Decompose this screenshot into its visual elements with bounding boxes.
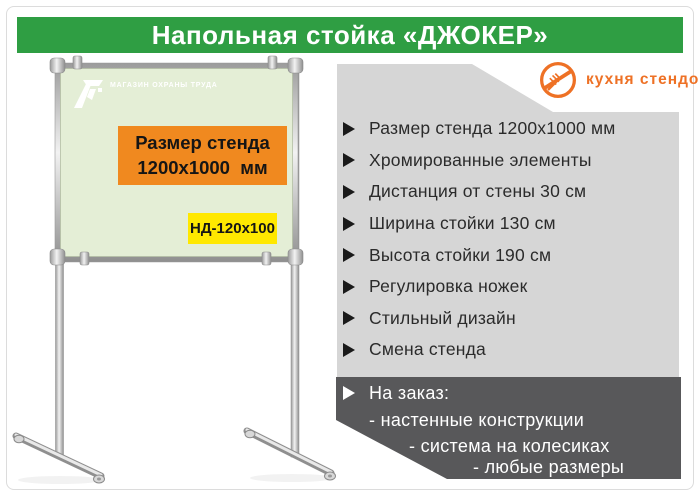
caster-wheel: [245, 430, 255, 438]
spec-item-label: Дистанция от стены 30 см: [369, 181, 586, 202]
model-code: НД-120х100: [190, 220, 275, 237]
bullet-triangle-icon: [343, 217, 355, 231]
spec-item-label: Хромированные элементы: [369, 150, 592, 171]
spec-item: Регулировка ножек: [343, 271, 677, 303]
bullet-triangle-icon: [343, 248, 355, 262]
size-badge-line1: Размер стенда: [135, 131, 270, 156]
board-logo-text: МАГАЗИН ОХРАНЫ ТРУДА: [110, 82, 218, 89]
model-badge: НД-120х100: [188, 213, 277, 244]
size-badge-line2: 1200х1000 мм: [137, 156, 267, 181]
order-title: На заказ:: [369, 383, 449, 404]
right-foot: [245, 430, 336, 482]
brand-label: кухня стендов: [586, 71, 700, 89]
bullet-triangle-icon: [343, 122, 355, 136]
order-title-row: На заказ:: [343, 382, 449, 404]
order-line-label: - любые размеры: [473, 457, 624, 478]
no-kitchen-fork-icon: [538, 60, 578, 100]
brand-logo: кухня стендов: [538, 60, 700, 100]
spec-item-label: Ширина стойки 130 см: [369, 213, 556, 234]
spec-item: Размер стенда 1200х1000 мм: [343, 113, 677, 145]
order-line-label: - система на колесиках: [409, 436, 610, 457]
spec-item: Ширина стойки 130 см: [343, 208, 677, 240]
order-line: - любые размеры: [473, 456, 624, 478]
board-logo-icon: [70, 76, 104, 112]
spec-item: Дистанция от стены 30 см: [343, 176, 677, 208]
caster-wheel: [14, 435, 24, 443]
spec-item-label: Размер стенда 1200х1000 мм: [369, 118, 616, 139]
order-line-label: - настенные конструкции: [369, 410, 584, 431]
spec-list: Размер стенда 1200х1000 мм Хромированные…: [343, 113, 677, 366]
board-logo: МАГАЗИН ОХРАНЫ ТРУДА: [70, 76, 260, 112]
spec-item: Хромированные элементы: [343, 145, 677, 177]
caster-wheel: [94, 475, 105, 483]
size-badge: Размер стенда 1200х1000 мм: [118, 126, 287, 185]
spec-item: Стильный дизайн: [343, 303, 677, 335]
order-line: - настенные конструкции: [369, 409, 584, 431]
bullet-triangle-icon: [343, 311, 355, 325]
bullet-triangle-icon: [343, 343, 355, 357]
spec-item-label: Смена стенда: [369, 339, 486, 360]
caster-wheel: [325, 472, 336, 480]
spec-item: Смена стенда: [343, 334, 677, 366]
bullet-triangle-icon: [343, 153, 355, 167]
spec-item-label: Высота стойки 190 см: [369, 245, 551, 266]
spec-item-label: Стильный дизайн: [369, 308, 516, 329]
bullet-triangle-icon: [343, 386, 355, 400]
bullet-triangle-icon: [343, 185, 355, 199]
spec-item: Высота стойки 190 см: [343, 239, 677, 271]
order-line: - система на колесиках: [409, 435, 610, 457]
bullet-triangle-icon: [343, 280, 355, 294]
spec-item-label: Регулировка ножек: [369, 276, 527, 297]
